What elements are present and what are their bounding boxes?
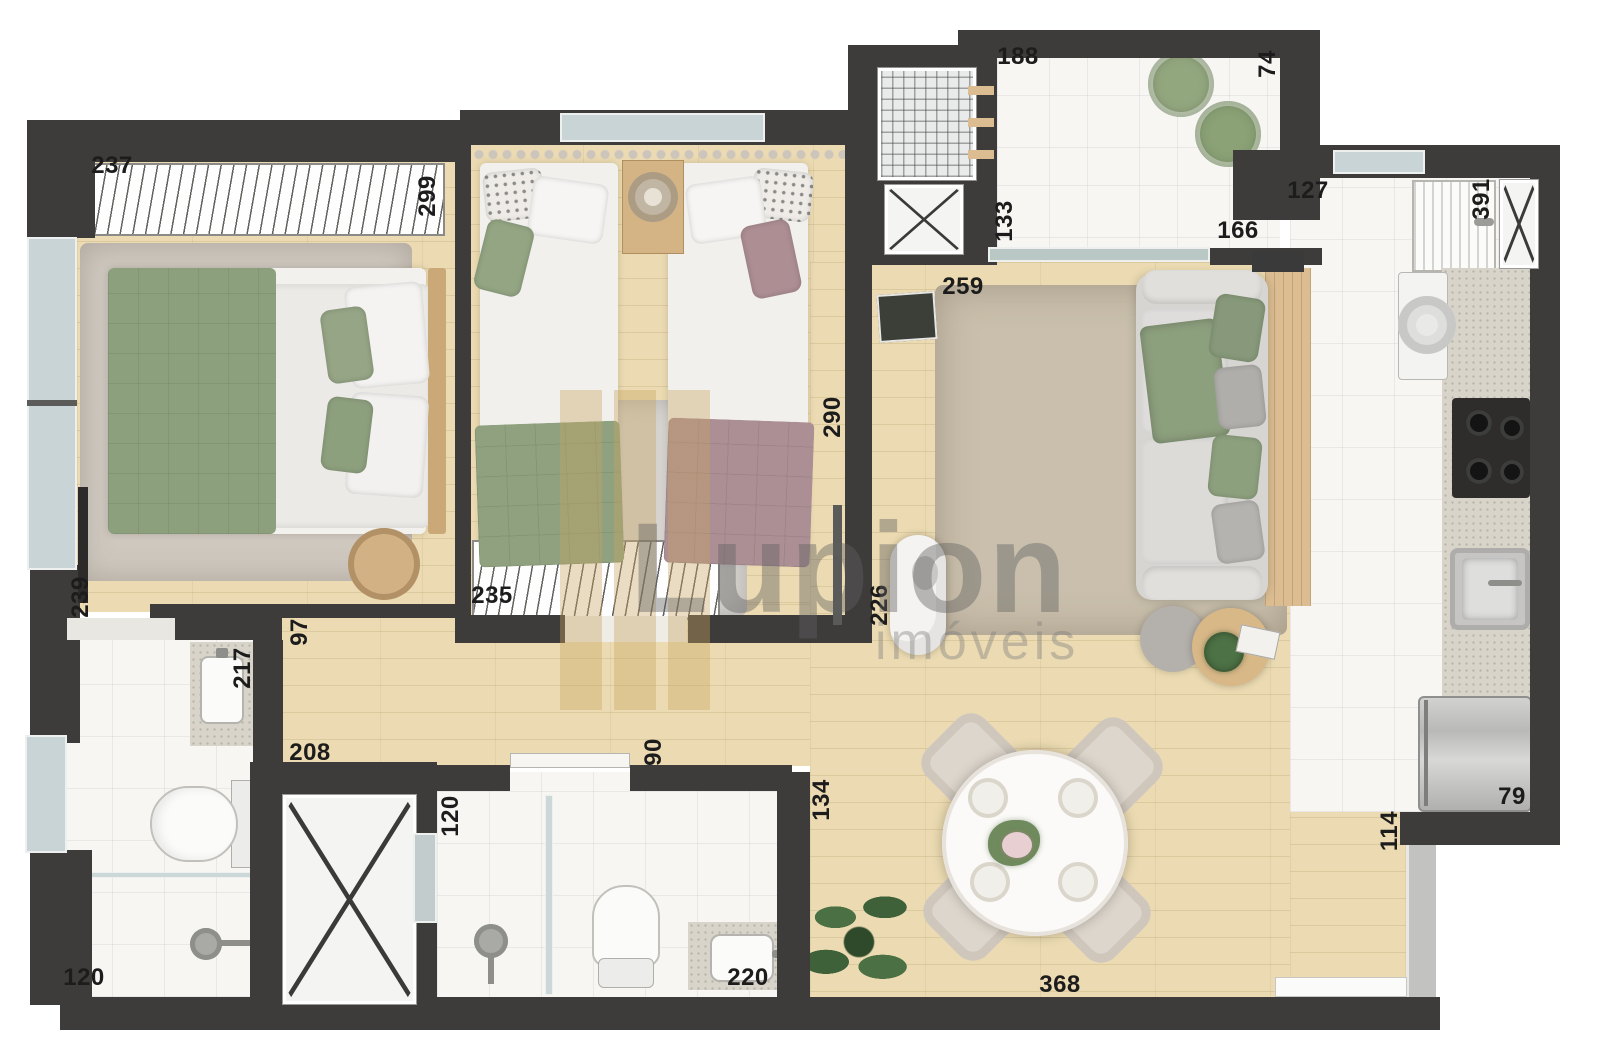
dining-plate-nw (968, 778, 1008, 818)
dining-centerpiece-flowers (1002, 832, 1032, 858)
dim-bath1-width: 120 (63, 964, 105, 992)
bedroom2-lamp (628, 172, 678, 222)
sofa-console (1265, 268, 1311, 606)
bed2-green-pillow-white (526, 175, 610, 245)
bed2-mauve-quilt (664, 417, 815, 567)
bath1-faucet (216, 648, 228, 658)
stove-burner-1 (1466, 410, 1492, 436)
service-shelf-handle-3 (968, 150, 994, 159)
living-magazine (876, 291, 937, 343)
dim-master-door-wall: 239 (67, 576, 95, 618)
dim-sideboard: 226 (866, 584, 894, 626)
dim-kitchen-depth: 391 (1468, 178, 1496, 220)
entry-door-strip (1406, 845, 1436, 997)
dim-bedroom2-depth: 290 (819, 396, 847, 438)
floor-plan: 237 299 188 74 133 166 127 391 259 290 2… (0, 0, 1600, 1060)
dim-balcony-depth: 74 (1254, 50, 1282, 78)
dim-bath2-shower-door: 120 (437, 795, 465, 837)
dim-master-closet: 237 (91, 152, 133, 180)
wall-master-bedroom2-divider (455, 140, 471, 618)
sofa-armrest-bottom (1142, 566, 1262, 600)
living-plant (800, 880, 918, 1004)
kitchen-shaft (1500, 180, 1538, 268)
dim-bath2-door: 90 (640, 738, 668, 766)
master-closet (93, 163, 445, 236)
bath2-door-leaf (510, 753, 630, 768)
dining-plate-se (1058, 862, 1098, 902)
bath2-toilet-bowl (592, 885, 660, 967)
service-shelf-grid (878, 68, 976, 180)
wall-bedroom2-bottom-right (688, 615, 872, 643)
dining-plate-sw (970, 862, 1010, 902)
stove-burner-2 (1500, 416, 1524, 440)
balcony-sliding-door (988, 247, 1210, 262)
bedroom2-door-threshold (565, 616, 687, 642)
dim-service-height: 133 (991, 200, 1019, 242)
bath2-shower-glass (545, 795, 553, 995)
bath2-shower-head (474, 924, 508, 958)
dim-bath1-vanity: 217 (229, 647, 257, 689)
kitchen-door-glass (1333, 150, 1425, 174)
master-headboard (428, 268, 446, 534)
wall-bedroom2-right (845, 140, 872, 620)
dim-hall-width: 97 (286, 618, 314, 646)
master-window-mullion (27, 400, 77, 406)
dim-hall-length: 208 (289, 739, 331, 767)
sofa-pillow-gray-1 (1213, 364, 1267, 431)
kitchen-sink-basin (1462, 558, 1518, 620)
kitchen-sink-faucet (1488, 580, 1522, 586)
bath2-toilet-base (598, 958, 654, 988)
dining-plate-ne (1058, 778, 1098, 818)
master-pillow-green-2 (320, 395, 375, 474)
wall-bath1-top (175, 618, 282, 640)
wall-master-hall (150, 604, 455, 618)
wall-master-top (95, 120, 460, 162)
stove-burner-3 (1466, 458, 1492, 484)
bath1-shower-arm (218, 940, 252, 946)
dim-entry-wall: 114 (1376, 811, 1404, 851)
dim-bedroom2-closet: 235 (471, 582, 513, 610)
wall-bath1-top-stub (57, 618, 67, 640)
bedroom2-tv (833, 505, 842, 625)
dim-master-depth: 299 (414, 175, 442, 217)
bedroom2-window (560, 113, 765, 142)
wall-bath2-right (777, 772, 810, 1002)
wall-balcony-right-top (1280, 30, 1320, 165)
washing-machine-door (1398, 296, 1456, 354)
bath1-toilet-bowl (150, 786, 238, 862)
dim-balcony-door: 166 (1217, 217, 1259, 245)
wall-bedroom2-bottom-left (455, 615, 565, 643)
balcony-pouf-1 (1148, 51, 1214, 117)
stove-burner-4 (1500, 460, 1524, 484)
bed2-green-quilt (475, 421, 625, 568)
living-tv (1252, 251, 1304, 272)
master-nightstand (348, 528, 420, 600)
fridge-handle (1424, 700, 1428, 806)
service-shelf-handle-1 (968, 86, 994, 95)
dim-fridge: 79 (1498, 783, 1526, 811)
service-shaft (885, 185, 963, 254)
wall-left-corner (27, 120, 95, 238)
hall-shaft (283, 795, 416, 1004)
sideboard-oval (890, 535, 946, 655)
service-shelf-handle-2 (968, 118, 994, 127)
dim-living-length: 368 (1039, 971, 1081, 999)
bath1-window (25, 735, 67, 853)
dim-kitchen-passage: 127 (1287, 177, 1329, 205)
wall-fridge-bottom (1400, 812, 1560, 845)
stove (1452, 398, 1530, 498)
dim-living-width: 259 (942, 273, 984, 301)
sofa-pillow-gray-2 (1210, 499, 1266, 565)
dim-bath2-vanity: 220 (727, 964, 769, 992)
master-bed-blanket (108, 268, 276, 534)
dim-service-width: 188 (997, 43, 1039, 71)
wall-bath2-top-right (630, 765, 792, 791)
dim-living-left-wall: 134 (808, 779, 836, 821)
wall-bath2-top-left (437, 765, 510, 791)
bath2-shower-arm (488, 954, 494, 984)
entry-mat (1275, 977, 1407, 997)
bath1-door-gap (67, 618, 175, 640)
sofa-pillow-green-1 (1207, 292, 1266, 363)
sofa-pillow-green-2 (1207, 434, 1263, 501)
bath2-shower-door-glass (413, 833, 437, 923)
sideboard-knob (912, 556, 938, 590)
bedroom2-wall-trim (472, 148, 846, 161)
